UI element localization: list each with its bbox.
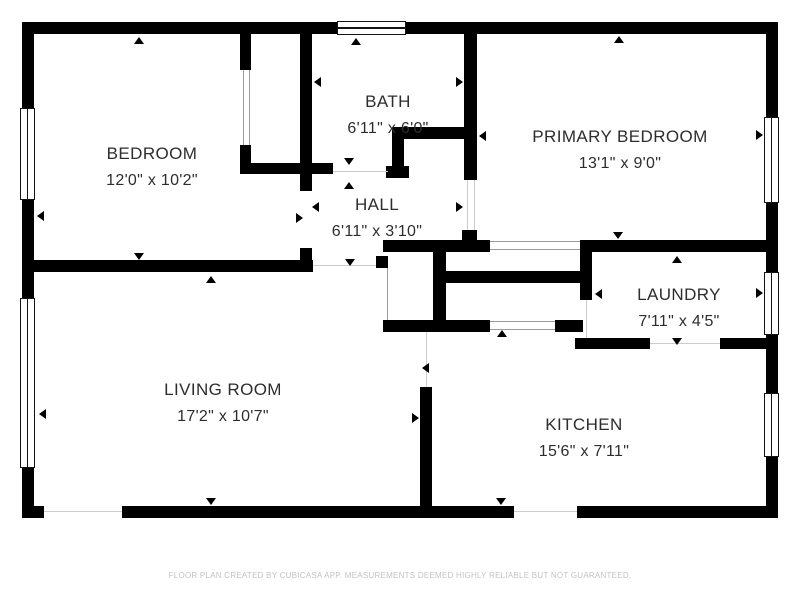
wall [22, 22, 337, 34]
room-label: HALL6'11" x 3'10" [332, 195, 422, 241]
door-line [243, 70, 244, 145]
direction-arrow [614, 33, 624, 43]
footer-disclaimer: FLOOR PLAN CREATED BY CUBICASA APP. MEAS… [0, 571, 800, 580]
opening-line [44, 511, 122, 512]
direction-arrow [206, 273, 216, 283]
room-name: PRIMARY BEDROOM [532, 127, 707, 147]
room-dimensions: 6'11" x 3'10" [332, 223, 422, 241]
door-line [387, 268, 388, 320]
room-dimensions: 13'1" x 9'0" [532, 155, 707, 173]
room-name: BATH [347, 92, 428, 112]
wall [22, 506, 44, 518]
wall [22, 200, 34, 298]
room-label: KITCHEN15'6" x 7'11" [539, 415, 629, 461]
room-name: KITCHEN [539, 415, 629, 435]
room-label: PRIMARY BEDROOM13'1" x 9'0" [532, 127, 707, 173]
wall [240, 163, 333, 174]
wall [383, 320, 490, 332]
direction-arrow [613, 232, 623, 242]
room-dimensions: 12'0" x 10'2" [106, 172, 198, 190]
direction-arrow [672, 338, 682, 348]
direction-arrow [206, 498, 216, 508]
door-line [490, 249, 580, 250]
window-pane-line [771, 118, 773, 202]
direction-arrow [309, 202, 319, 212]
direction-arrow [496, 498, 506, 508]
direction-arrow [672, 253, 682, 263]
direction-arrow [311, 77, 321, 87]
room-name: LAUNDRY [637, 285, 721, 305]
window [764, 117, 779, 203]
wall [420, 387, 432, 506]
room-label: LIVING ROOM17'2" x 10'7" [164, 380, 282, 426]
room-name: HALL [332, 195, 422, 215]
opening-line [474, 180, 475, 230]
wall [580, 240, 766, 252]
room-dimensions: 15'6" x 7'11" [539, 443, 629, 461]
room-dimensions: 6'11" x 6'0" [347, 120, 428, 138]
wall [555, 320, 583, 332]
direction-arrow [36, 409, 46, 419]
room-name: LIVING ROOM [164, 380, 282, 400]
direction-arrow [345, 259, 355, 269]
room-dimensions: 7'11" x 4'5" [637, 313, 721, 331]
window-pane-line [771, 394, 773, 456]
direction-arrow [34, 211, 44, 221]
direction-arrow [412, 413, 422, 423]
direction-arrow [456, 202, 466, 212]
direction-arrow [344, 179, 354, 189]
wall [392, 139, 404, 167]
opening-line [650, 343, 720, 344]
direction-arrow [134, 34, 144, 44]
window-pane-line [771, 273, 773, 334]
floorplan-page: BEDROOM12'0" x 10'2"BATH6'11" x 6'0"PRIM… [0, 0, 800, 600]
wall [376, 256, 388, 268]
wall [575, 338, 650, 349]
wall [766, 203, 778, 272]
direction-arrow [296, 213, 306, 223]
opening-line [333, 171, 388, 172]
wall [122, 506, 514, 518]
opening-line [514, 511, 577, 512]
direction-arrow [419, 363, 429, 373]
wall [300, 34, 312, 191]
direction-arrow [134, 253, 144, 263]
wall [720, 338, 766, 349]
room-label: BATH6'11" x 6'0" [347, 92, 428, 138]
room-dimensions: 17'2" x 10'7" [164, 408, 282, 426]
opening-line [586, 300, 587, 338]
wall [580, 240, 592, 300]
window [20, 108, 35, 200]
direction-arrow [351, 35, 361, 45]
window [764, 272, 779, 335]
window [764, 393, 779, 457]
direction-arrow [344, 158, 354, 168]
direction-arrow [592, 289, 602, 299]
wall [433, 240, 446, 332]
wall [22, 260, 313, 272]
wall [406, 22, 778, 34]
wall [464, 34, 477, 180]
opening-line [467, 180, 468, 230]
window [20, 298, 35, 468]
direction-arrow [756, 288, 766, 298]
window [337, 21, 406, 35]
wall [766, 335, 778, 393]
wall [22, 22, 34, 108]
door-line [490, 321, 555, 322]
floorplan-canvas: BEDROOM12'0" x 10'2"BATH6'11" x 6'0"PRIM… [0, 0, 800, 600]
wall [446, 271, 583, 283]
door-line [249, 70, 250, 145]
window-pane-line [27, 109, 29, 199]
window-pane-line [27, 299, 29, 467]
direction-arrow [476, 131, 486, 141]
wall [240, 34, 251, 70]
room-name: BEDROOM [106, 144, 198, 164]
direction-arrow [497, 327, 507, 337]
window-pane-line [338, 27, 405, 29]
room-label: LAUNDRY7'11" x 4'5" [637, 285, 721, 331]
wall [766, 22, 778, 117]
wall [577, 506, 778, 518]
opening-line [426, 332, 427, 387]
room-label: BEDROOM12'0" x 10'2" [106, 144, 198, 190]
direction-arrow [456, 77, 466, 87]
door-line [490, 241, 580, 242]
wall [386, 166, 409, 178]
direction-arrow [756, 130, 766, 140]
